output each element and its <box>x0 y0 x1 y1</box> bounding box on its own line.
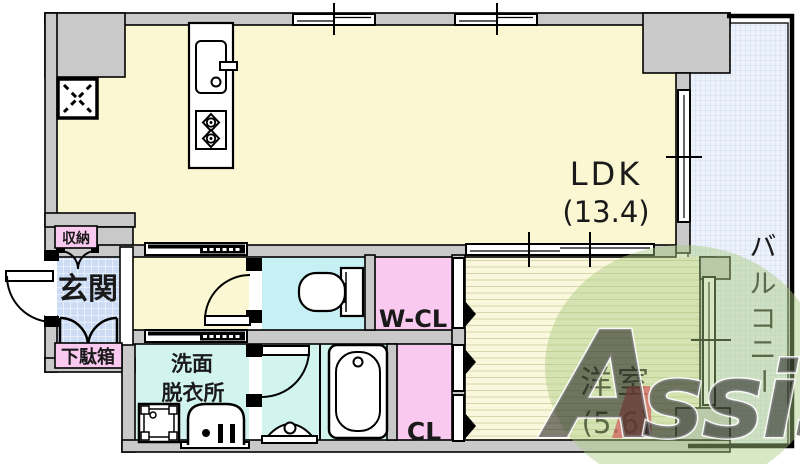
vanity-sink-icon <box>181 404 249 448</box>
wall-entrance-top <box>45 213 135 227</box>
storage-label: 収納 <box>62 230 90 247</box>
washroom-label-line1: 洗面 <box>171 352 213 376</box>
wall-toilet-wcl <box>365 255 375 330</box>
toilet-door-gap <box>249 272 262 310</box>
hallway-ldk-sliding-door <box>145 243 247 255</box>
front-door-gap <box>45 260 57 316</box>
wall-top <box>45 13 730 25</box>
ldk-label: LDK <box>570 155 642 193</box>
floorplan-svg: LDK (13.4) 洋室 (5.6) W-CL CL 玄関 下駄箱 収納 洗面… <box>0 0 800 464</box>
pipe-space-icon <box>58 79 97 118</box>
toilet-icon <box>299 268 363 316</box>
ldk-area: (13.4) <box>562 195 649 229</box>
front-door <box>6 250 59 327</box>
wcl-label: W-CL <box>379 305 447 333</box>
entrance-step <box>120 247 133 345</box>
washroom-label-line2: 脱衣所 <box>162 381 225 405</box>
wall-topright-column <box>643 13 730 73</box>
shoe-cabinet-label: 下駄箱 <box>61 346 115 368</box>
bathtub-icon <box>320 344 387 440</box>
floorplan: LDK (13.4) 洋室 (5.6) W-CL CL 玄関 下駄箱 収納 洗面… <box>0 0 800 464</box>
wall-washroom-left <box>122 330 135 452</box>
kitchen-counter-icon <box>189 23 237 168</box>
wall-bath-closet <box>387 344 397 440</box>
entrance-label: 玄関 <box>58 272 118 307</box>
watermark-letters-ssist: ssist <box>642 340 800 462</box>
cl-label: CL <box>407 417 441 446</box>
bathroom-door-gap <box>249 358 262 394</box>
washer-pan-icon <box>139 404 179 442</box>
balcony-char-1: バ <box>750 232 777 263</box>
hallway-washroom-sliding-door <box>145 330 247 342</box>
